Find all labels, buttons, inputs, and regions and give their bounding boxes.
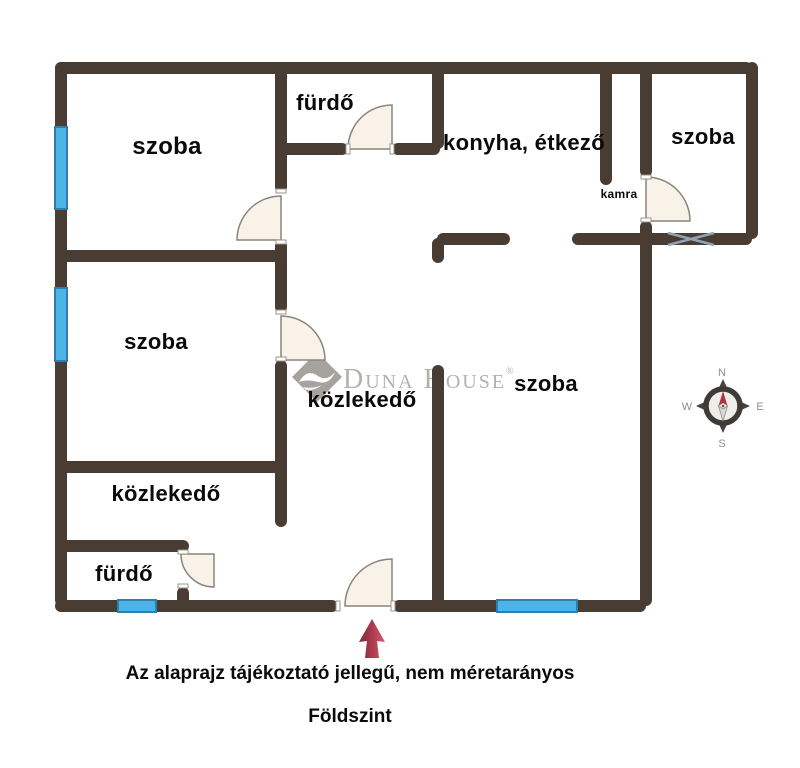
room-label-furdo-bottom: fürdő [95, 561, 153, 587]
window-bottom-right [497, 600, 577, 612]
door-arc-bathroom-top [348, 105, 392, 149]
room-label-furdo-top: fürdő [296, 90, 354, 116]
compass-rose-icon: N E S W [682, 367, 764, 450]
entrance-arrow-icon [359, 619, 385, 658]
window-left-lower [55, 288, 67, 361]
room-label-kozlekedo-center: közlekedő [307, 387, 416, 413]
floor-level-text: Földszint [308, 706, 391, 728]
window-bottom-left [118, 600, 156, 612]
room-label-szoba-mid-left: szoba [124, 329, 188, 355]
windows [55, 127, 577, 612]
window-left-upper [55, 127, 67, 209]
room-label-kozlekedo-left: közlekedő [111, 481, 220, 507]
room-label-szoba-bottom-right: szoba [514, 371, 578, 397]
floor-plan-drawing: N E S W [0, 0, 800, 768]
compass-label-n: N [718, 367, 726, 379]
room-label-konyha-etkezo: konyha, étkező [443, 130, 605, 156]
room-label-szoba-top-left: szoba [132, 133, 202, 161]
room-label-szoba-top-right: szoba [671, 124, 735, 150]
compass-label-e: E [756, 401, 763, 413]
compass-label-s: S [718, 438, 725, 450]
door-arc-room-top-left [237, 196, 281, 240]
door-arc-bathroom-bottom [181, 554, 214, 587]
door-arc-room-top-right [646, 177, 690, 221]
door-arc-entrance [345, 559, 392, 606]
room-label-kamra: kamra [601, 187, 638, 201]
disclaimer-text: Az alaprajz tájékoztató jellegű, nem mér… [126, 663, 575, 685]
door-arc-room-mid-left [281, 316, 325, 360]
floor-plan-page: DUNAHOUSE® [0, 0, 800, 768]
compass-label-w: W [682, 401, 693, 413]
